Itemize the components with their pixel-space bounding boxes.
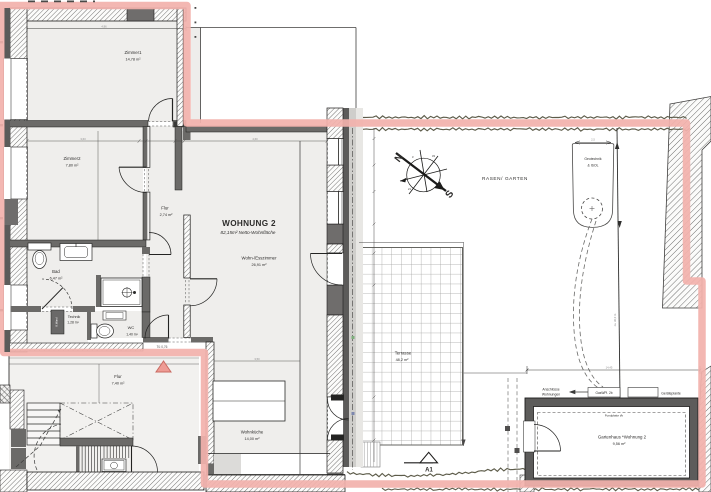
svg-text:48,2 m²: 48,2 m² (396, 358, 410, 362)
svg-text:1,40 m²: 1,40 m² (126, 333, 138, 337)
svg-text:7,80 m²: 7,80 m² (66, 164, 80, 168)
svg-text:2,74 m²: 2,74 m² (160, 213, 174, 217)
svg-text:2,5: 2,5 (591, 138, 595, 142)
svg-text:Terrasse: Terrasse (395, 351, 412, 356)
svg-text:Bad: Bad (52, 269, 60, 274)
svg-text:A1: A1 (425, 468, 433, 474)
svg-text:9,56 m²: 9,56 m² (613, 442, 627, 446)
svg-text:Gartenhaus *Wohnung 2: Gartenhaus *Wohnung 2 (598, 435, 647, 440)
svg-text:4,96: 4,96 (101, 24, 107, 28)
svg-text:Technik: Technik (68, 315, 81, 319)
svg-text:3,50: 3,50 (254, 357, 260, 361)
svg-text:& ISOL: & ISOL (588, 164, 599, 168)
svg-text:7,40 m²: 7,40 m² (112, 382, 126, 386)
svg-text:GasWPl. 2b: GasWPl. 2b (595, 391, 612, 395)
svg-text:RASEN/ GARTEN: RASEN/ GARTEN (482, 176, 528, 181)
svg-text:14,78 m²: 14,78 m² (126, 58, 142, 62)
svg-text:Flur: Flur (161, 206, 169, 211)
svg-text:Geotechnik: Geotechnik (584, 157, 601, 161)
svg-text:Fundplatte t/b: Fundplatte t/b (605, 414, 624, 418)
svg-text:Wohnküche: Wohnküche (241, 430, 264, 435)
svg-text:14,00 m²: 14,00 m² (245, 437, 261, 441)
svg-text:Wohnungen: Wohnungen (542, 393, 560, 397)
svg-text:3,63: 3,63 (80, 137, 86, 141)
svg-text:WOHNUNG 2: WOHNUNG 2 (222, 219, 276, 228)
svg-text:26,91 m²: 26,91 m² (252, 263, 268, 267)
svg-text:4,60: 4,60 (252, 137, 258, 141)
svg-text:Zimmer1: Zimmer1 (125, 50, 143, 55)
svg-text:ca. 30,0 m: ca. 30,0 m (613, 313, 617, 326)
svg-text:14,45: 14,45 (606, 365, 613, 369)
svg-text:Tü 0,76: Tü 0,76 (157, 345, 168, 349)
svg-text:Flur: Flur (114, 374, 122, 379)
svg-text:Geräteplante: Geräteplante (661, 392, 681, 396)
svg-text:Anschlüsse: Anschlüsse (542, 388, 559, 392)
svg-text:Wohn-/Esszimmer: Wohn-/Esszimmer (241, 256, 277, 261)
svg-text:82,15m² Netto-Wohnfläche: 82,15m² Netto-Wohnfläche (221, 230, 276, 235)
svg-text:WC: WC (128, 325, 135, 330)
svg-text:K.Wand: K.Wand (55, 317, 59, 327)
svg-text:6,47 m²: 6,47 m² (50, 277, 64, 281)
svg-text:1,28 m²: 1,28 m² (67, 321, 79, 325)
svg-text:Zimmer2: Zimmer2 (64, 156, 82, 161)
